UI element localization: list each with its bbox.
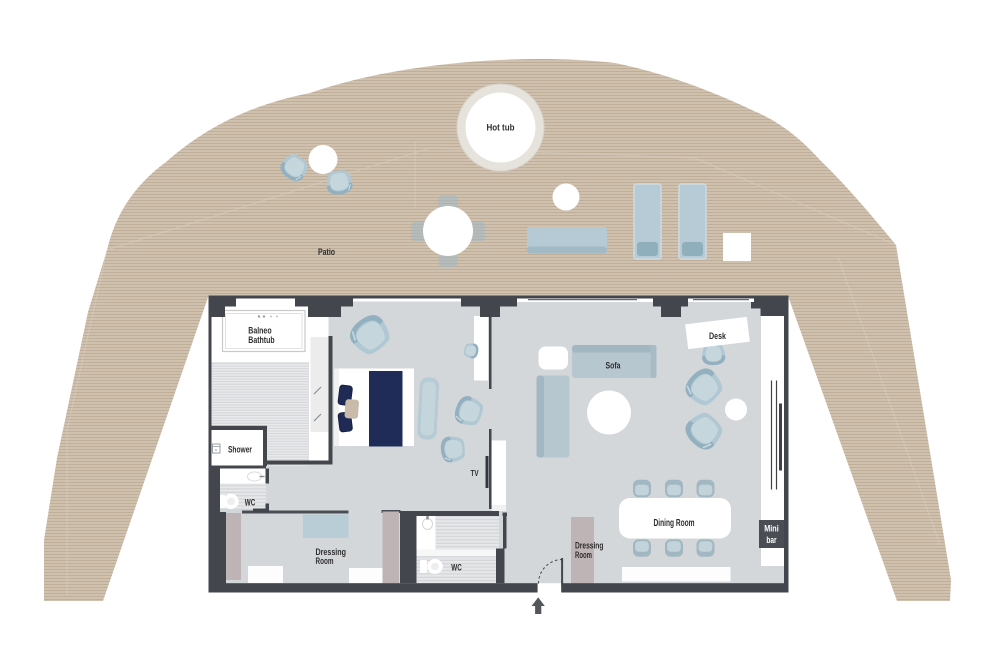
svg-text:TV: TV bbox=[471, 469, 480, 478]
svg-text:Hot tub: Hot tub bbox=[487, 123, 515, 134]
svg-text:WC: WC bbox=[245, 497, 256, 508]
svg-text:Shower: Shower bbox=[228, 444, 252, 454]
svg-text:Dressing: Dressing bbox=[575, 541, 603, 551]
svg-text:Balneo: Balneo bbox=[248, 325, 272, 335]
svg-text:Sofa: Sofa bbox=[606, 360, 622, 370]
svg-text:Room: Room bbox=[575, 550, 592, 560]
svg-text:WC: WC bbox=[451, 562, 462, 573]
svg-text:Patio: Patio bbox=[318, 247, 335, 257]
svg-text:Mini: Mini bbox=[764, 524, 778, 534]
svg-text:Room: Room bbox=[316, 556, 334, 566]
svg-text:Desk: Desk bbox=[709, 331, 727, 341]
svg-text:Dining Room: Dining Room bbox=[654, 518, 695, 529]
svg-text:Bathtub: Bathtub bbox=[248, 335, 275, 345]
svg-text:bar: bar bbox=[766, 535, 777, 545]
